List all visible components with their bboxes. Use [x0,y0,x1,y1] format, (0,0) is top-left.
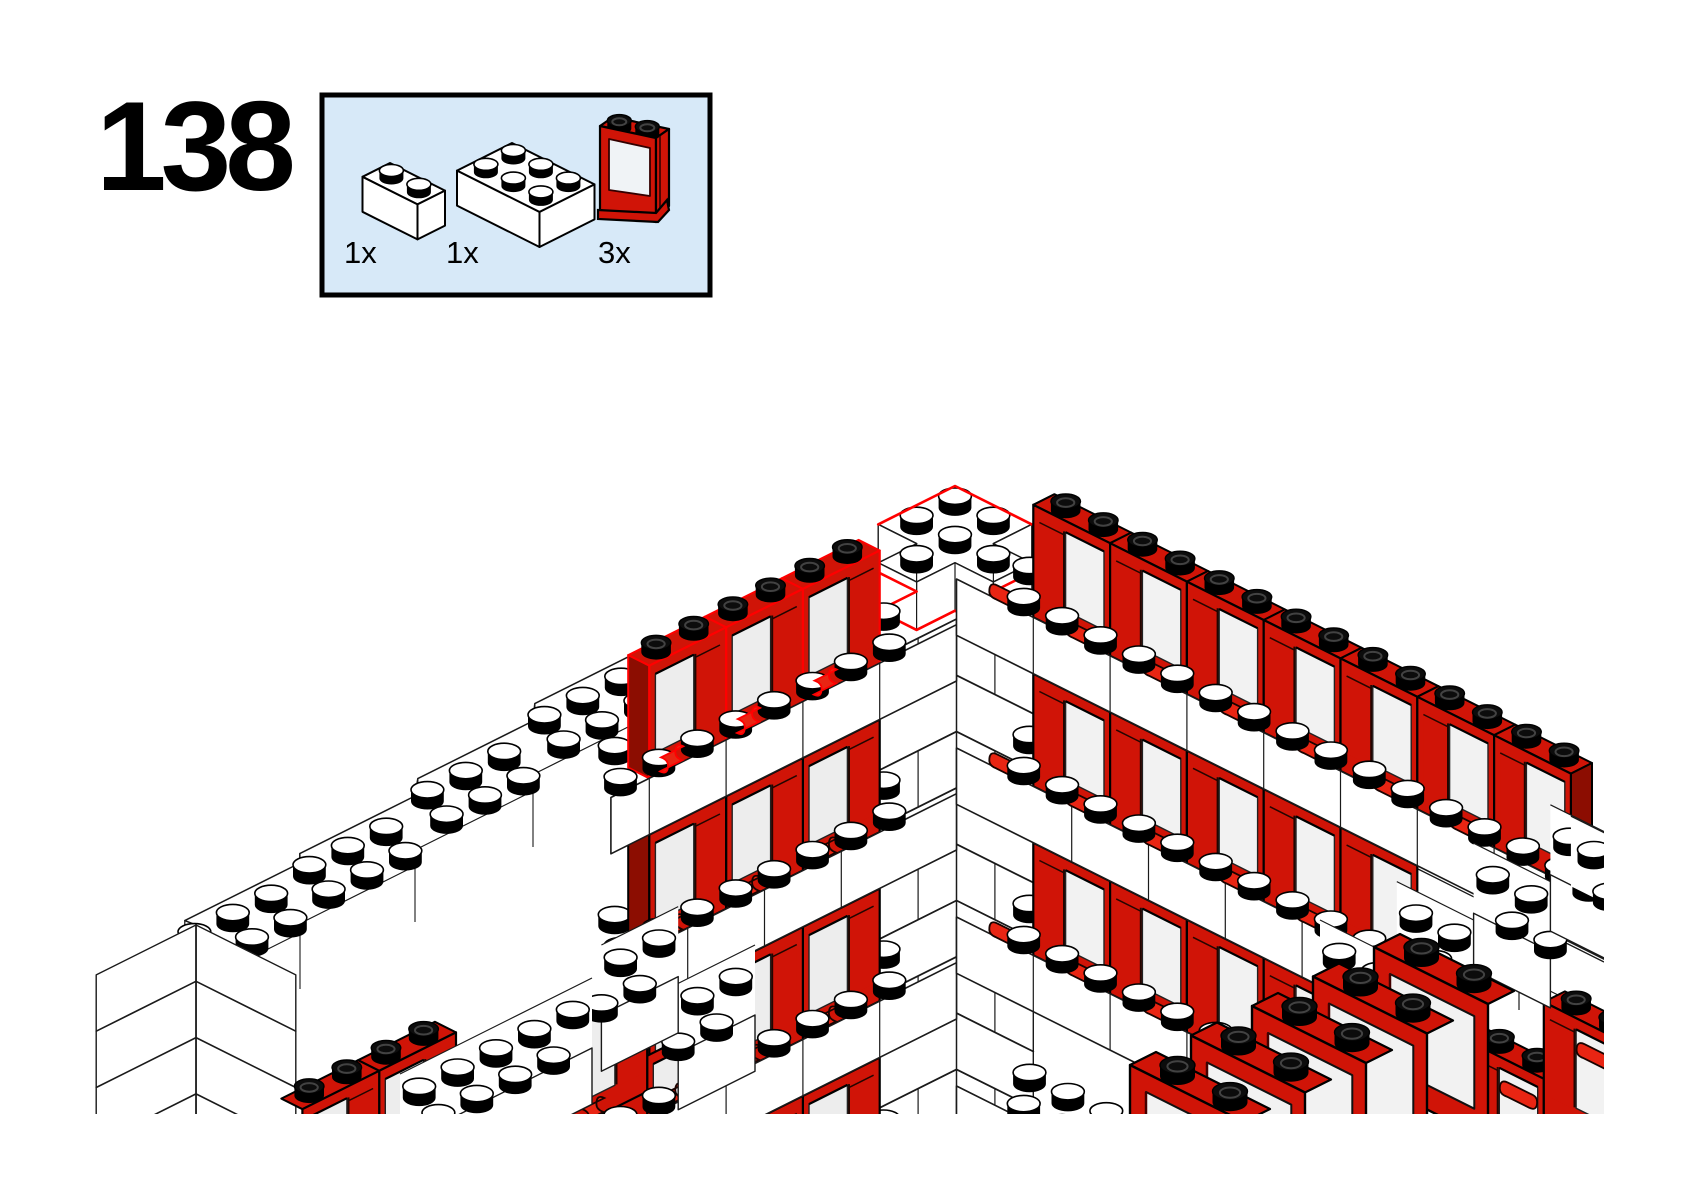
svg-text:138: 138 [96,75,292,217]
svg-text:3x: 3x [598,235,631,270]
svg-text:1x: 1x [344,235,377,270]
svg-text:1x: 1x [446,235,479,270]
